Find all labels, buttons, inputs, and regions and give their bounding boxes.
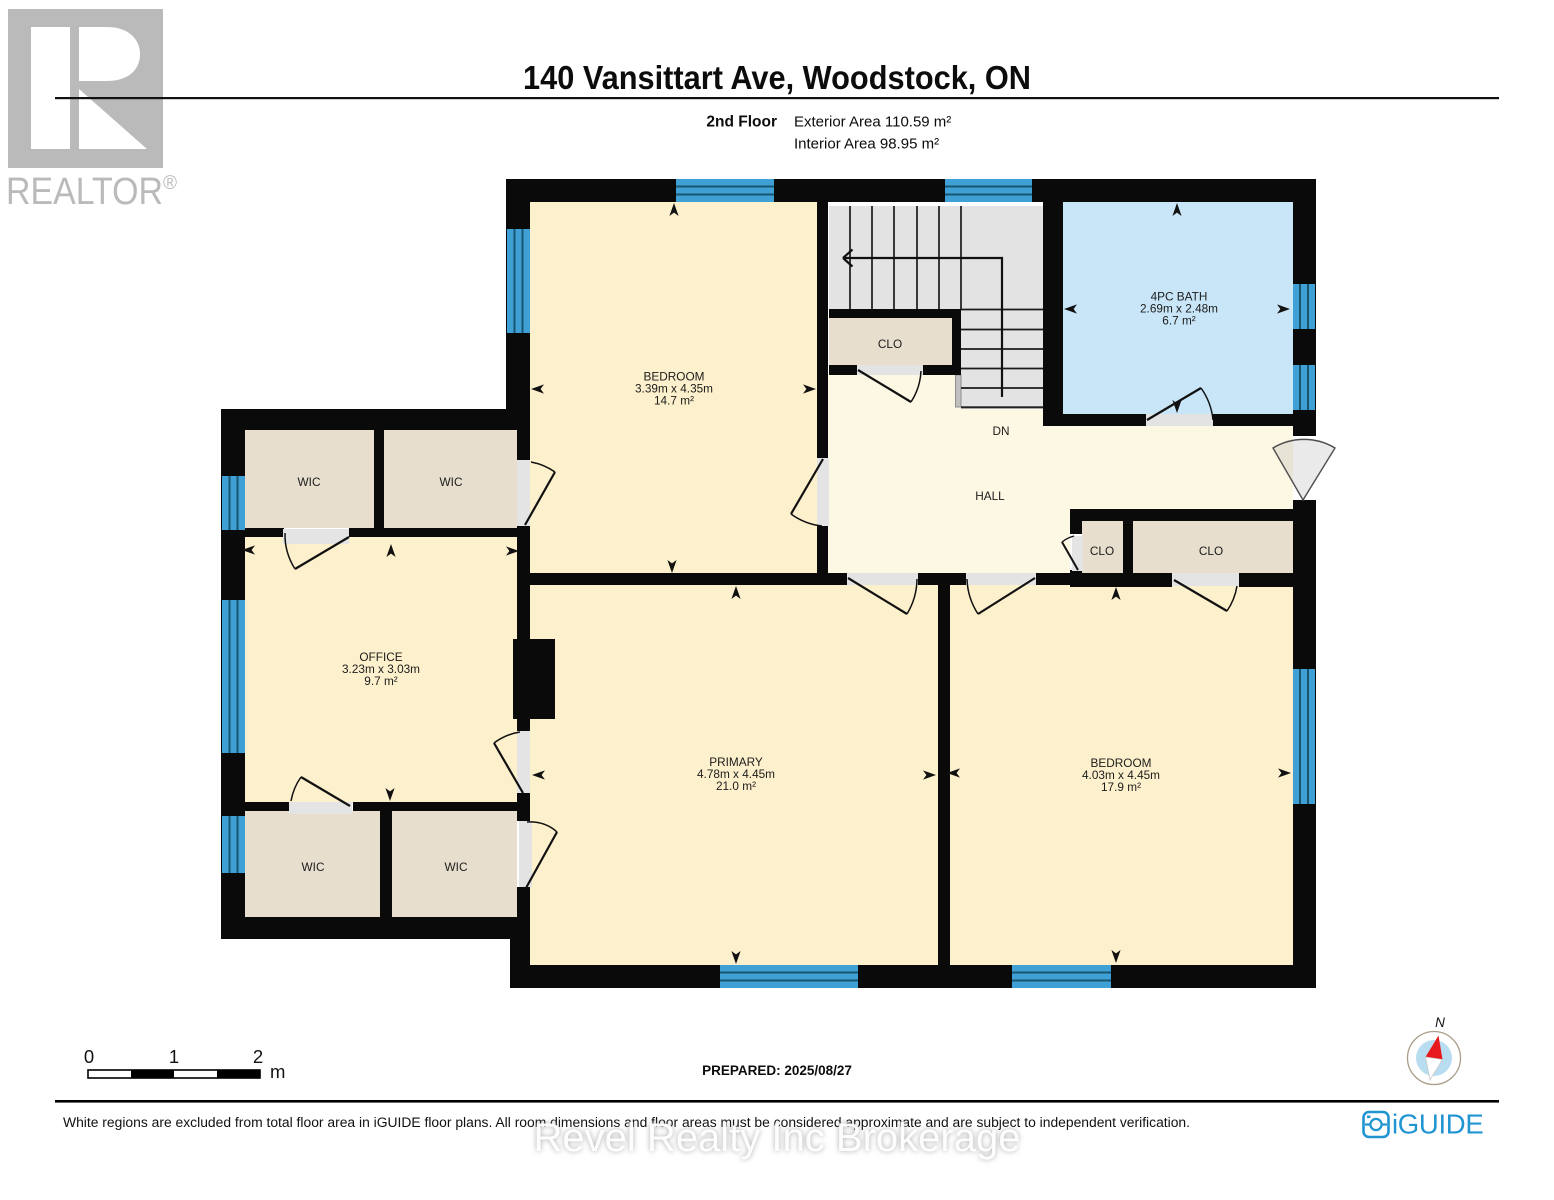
svg-text:iGUIDE: iGUIDE <box>1392 1109 1483 1140</box>
svg-text:0: 0 <box>84 1046 94 1067</box>
svg-text:PREPARED: 2025/08/27: PREPARED: 2025/08/27 <box>702 1063 852 1078</box>
svg-text:Interior Area 98.95 m²: Interior Area 98.95 m² <box>794 136 939 153</box>
svg-text:2nd Floor: 2nd Floor <box>706 114 777 131</box>
svg-text:REALTOR: REALTOR <box>6 171 163 213</box>
svg-text:17.9 m²: 17.9 m² <box>1101 780 1141 794</box>
svg-text:HALL: HALL <box>975 489 1005 503</box>
svg-text:WIC: WIC <box>298 475 321 489</box>
svg-text:WIC: WIC <box>445 860 468 874</box>
svg-text:14.7 m²: 14.7 m² <box>654 394 694 408</box>
svg-text:CLO: CLO <box>1199 544 1223 558</box>
svg-text:WIC: WIC <box>440 475 463 489</box>
svg-text:N: N <box>1435 1015 1445 1030</box>
svg-text:m: m <box>270 1061 285 1082</box>
svg-text:CLO: CLO <box>878 337 902 351</box>
svg-text:CLO: CLO <box>1090 544 1114 558</box>
svg-text:WIC: WIC <box>302 860 325 874</box>
svg-text:®: ® <box>163 173 177 194</box>
svg-text:2: 2 <box>253 1046 263 1067</box>
svg-text:Exterior Area 110.59 m²: Exterior Area 110.59 m² <box>794 114 951 131</box>
svg-text:9.7 m²: 9.7 m² <box>364 674 398 688</box>
svg-text:21.0 m²: 21.0 m² <box>716 779 756 793</box>
svg-text:Revel Realty Inc Brokerage: Revel Realty Inc Brokerage <box>534 1116 1021 1160</box>
svg-text:DN: DN <box>992 424 1009 438</box>
svg-text:6.7 m²: 6.7 m² <box>1162 314 1196 328</box>
svg-text:1: 1 <box>169 1046 179 1067</box>
svg-text:140 Vansittart Ave, Woodstock,: 140 Vansittart Ave, Woodstock, ON <box>523 59 1031 96</box>
